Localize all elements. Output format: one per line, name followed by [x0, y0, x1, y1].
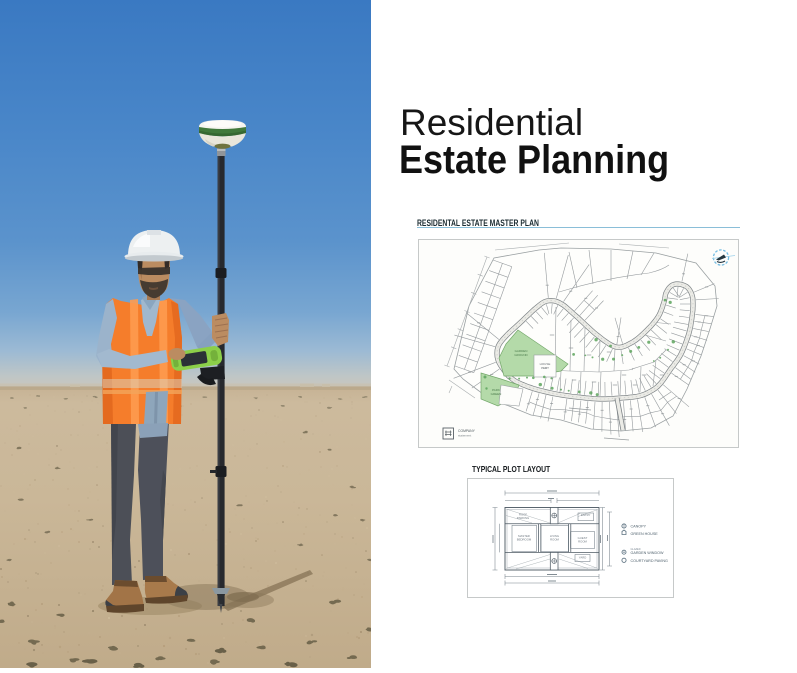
svg-text:ENTRY: ENTRY [581, 513, 591, 517]
svg-text:ROOM: ROOM [550, 538, 559, 542]
svg-text:PLOT: PLOT [541, 366, 549, 370]
svg-text:YARD: YARD [579, 556, 587, 560]
svg-text:CANOPY: CANOPY [631, 525, 647, 529]
svg-text:GREEN: GREEN [491, 392, 502, 396]
svg-text:GROUND: GROUND [514, 353, 528, 357]
svg-text:PARKING: PARKING [517, 516, 529, 520]
svg-text:BEDROOM: BEDROOM [517, 538, 532, 542]
svg-text:GARDEN WINDOW: GARDEN WINDOW [631, 551, 665, 555]
svg-text:COMPANY: COMPANY [458, 429, 476, 433]
svg-text:statement: statement [458, 434, 471, 438]
svg-text:COURTYARD PAVING: COURTYARD PAVING [631, 559, 669, 563]
svg-text:GREEN HOUSE: GREEN HOUSE [631, 532, 659, 536]
svg-text:ROOM: ROOM [578, 540, 587, 544]
